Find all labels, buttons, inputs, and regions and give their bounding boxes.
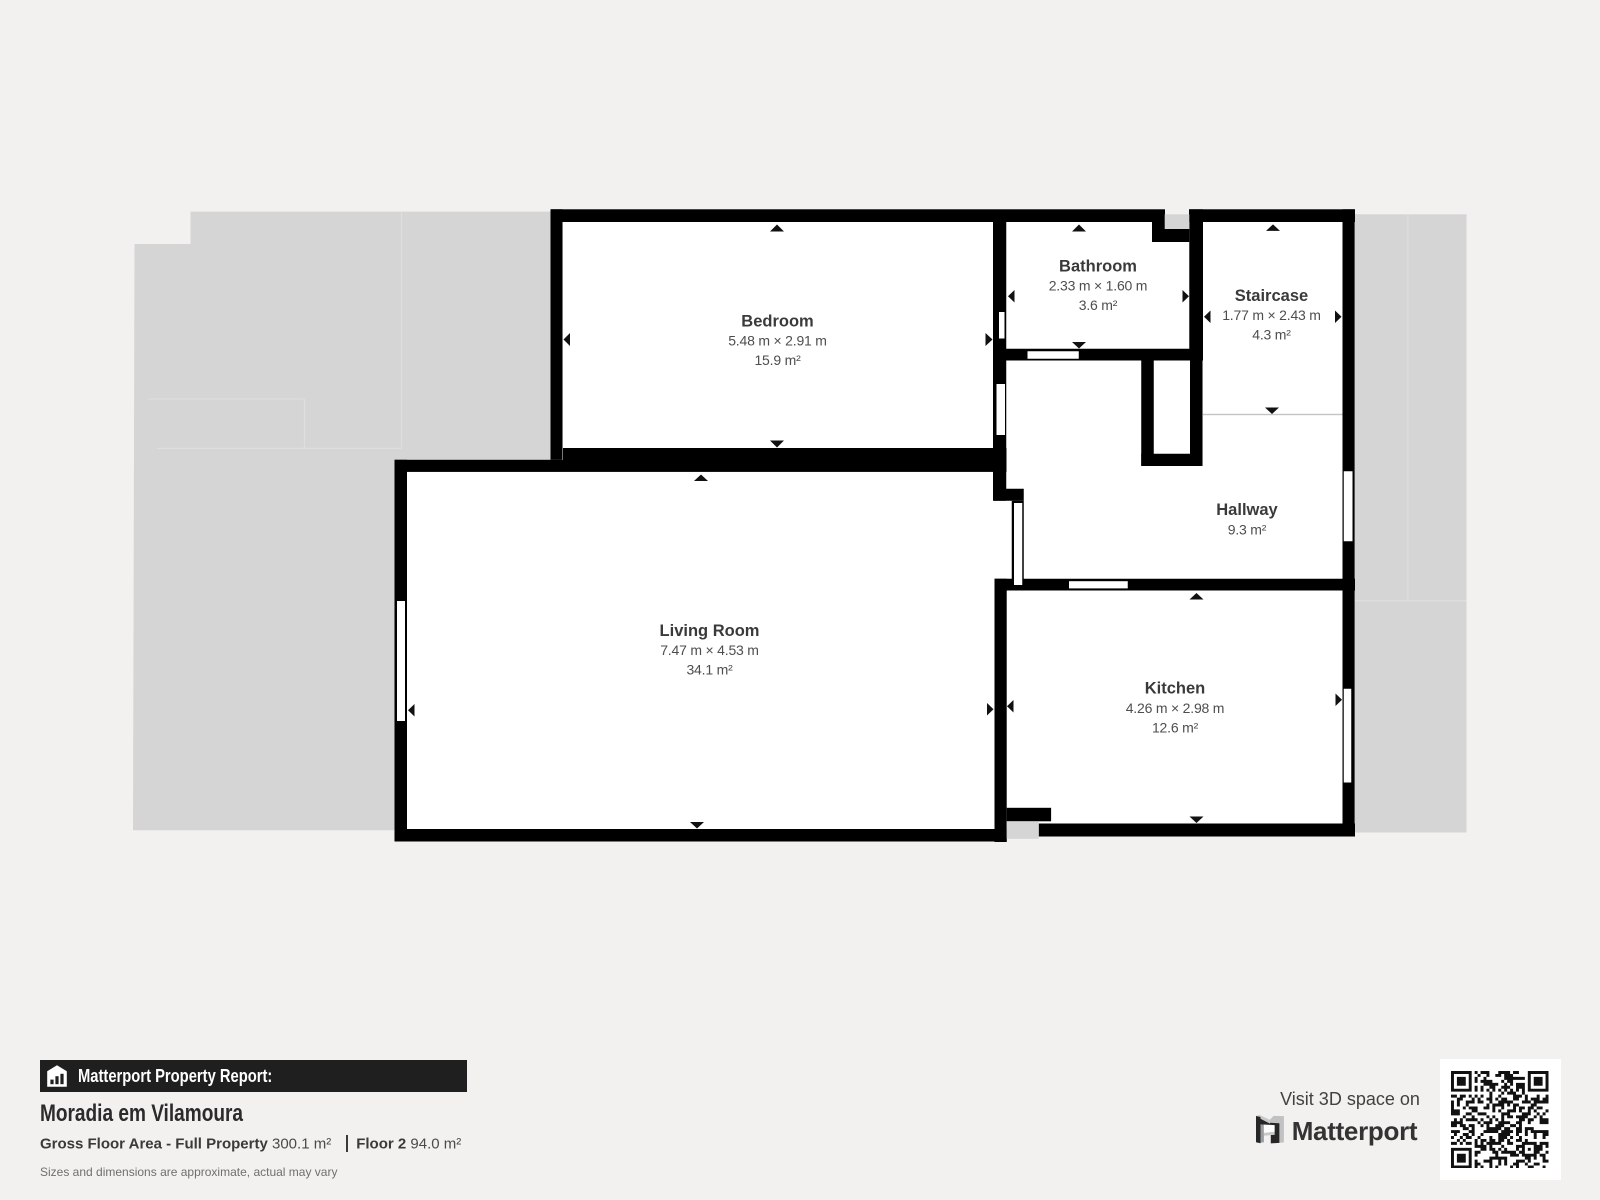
svg-text:34.1 m²: 34.1 m²	[686, 662, 733, 678]
svg-text:Staircase: Staircase	[1235, 287, 1308, 305]
svg-text:Living Room: Living Room	[660, 622, 760, 640]
svg-text:12.6 m²: 12.6 m²	[1152, 719, 1199, 735]
svg-text:7.47 m × 4.53 m: 7.47 m × 4.53 m	[660, 642, 759, 658]
svg-text:3.6 m²: 3.6 m²	[1079, 297, 1118, 313]
svg-text:Hallway: Hallway	[1216, 501, 1278, 519]
svg-text:Bedroom: Bedroom	[741, 312, 813, 330]
svg-text:9.3 m²: 9.3 m²	[1228, 521, 1267, 537]
svg-text:Bathroom: Bathroom	[1059, 257, 1137, 275]
svg-text:1.77 m × 2.43 m: 1.77 m × 2.43 m	[1222, 307, 1321, 323]
svg-text:2.33 m × 1.60 m: 2.33 m × 1.60 m	[1049, 278, 1148, 294]
svg-text:15.9 m²: 15.9 m²	[754, 352, 801, 368]
svg-text:5.48 m × 2.91 m: 5.48 m × 2.91 m	[728, 333, 827, 349]
svg-text:4.26 m × 2.98 m: 4.26 m × 2.98 m	[1126, 700, 1225, 716]
svg-text:Kitchen: Kitchen	[1145, 680, 1206, 698]
svg-text:4.3 m²: 4.3 m²	[1252, 327, 1291, 343]
